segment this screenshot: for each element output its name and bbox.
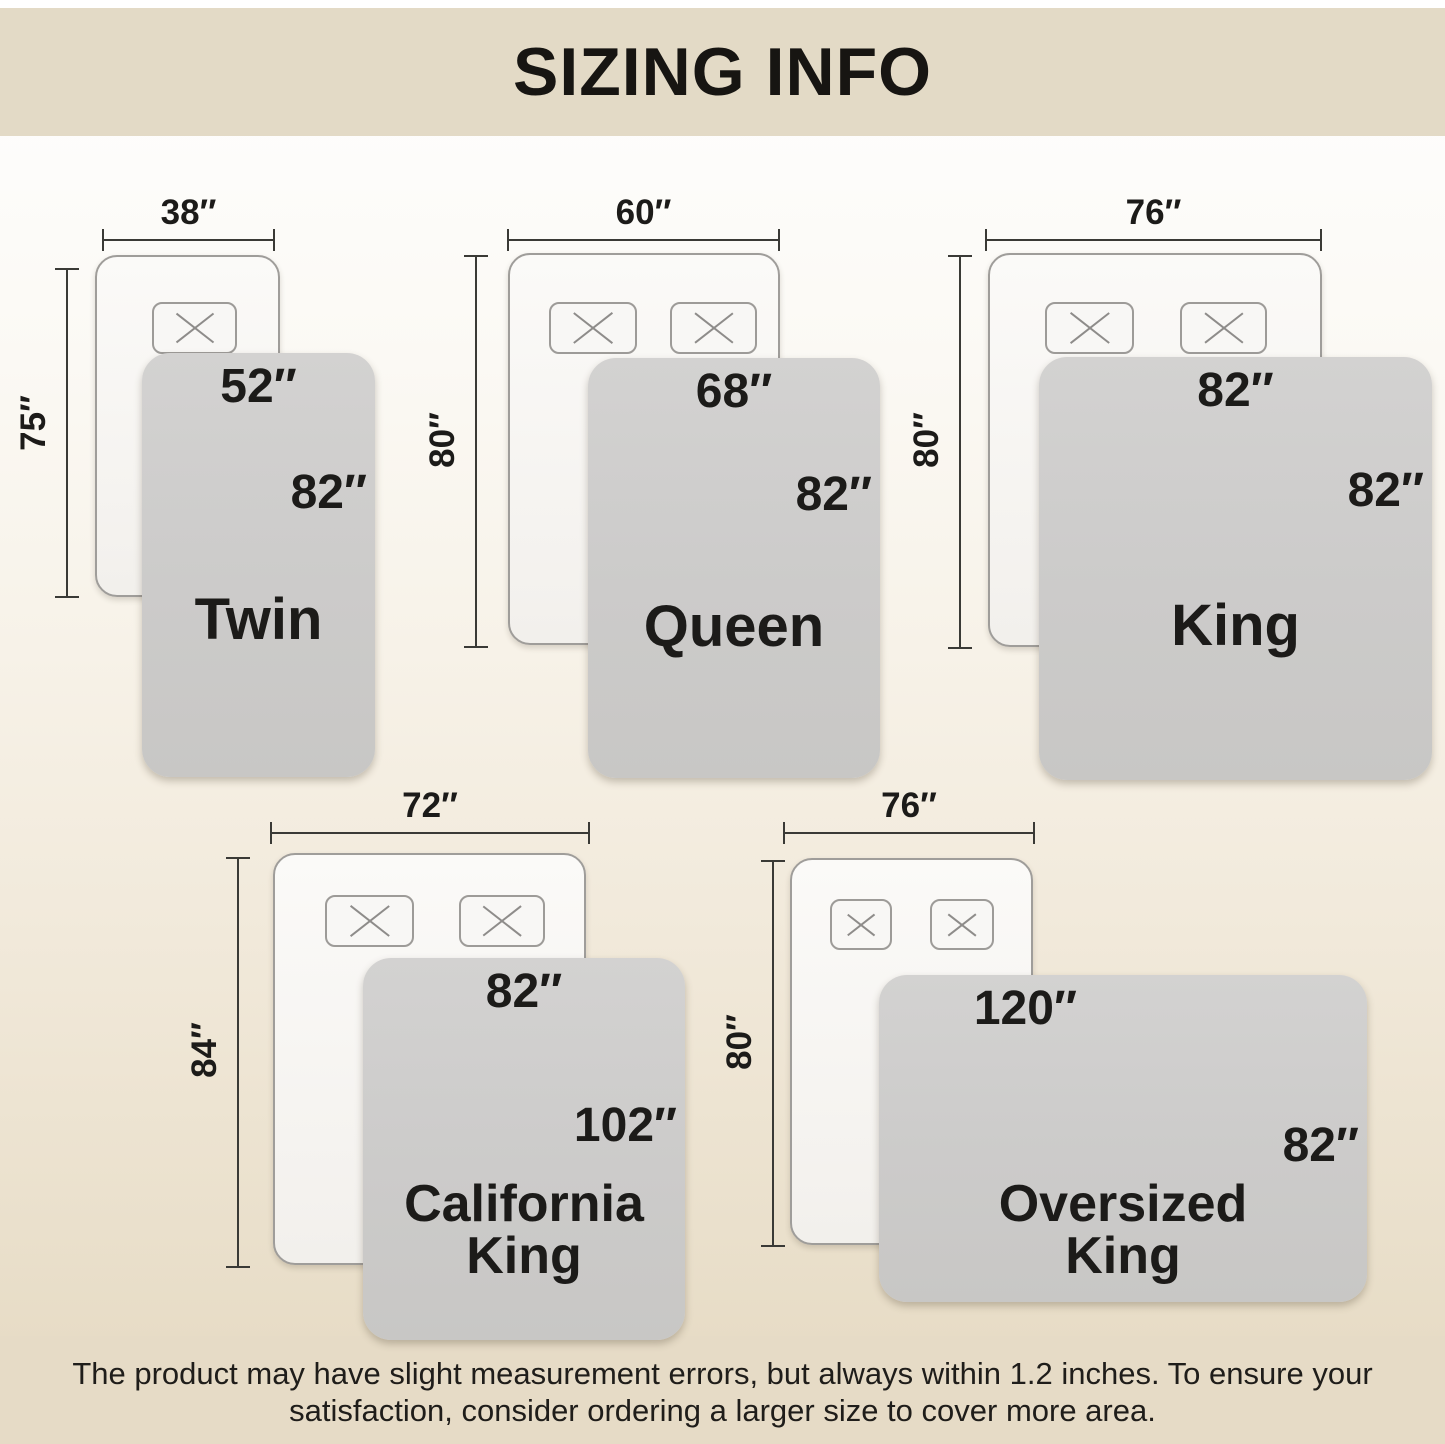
bed-width-dimension-line: 76″ <box>985 239 1322 241</box>
pillow-icon <box>549 302 637 354</box>
size-name-label: Queen <box>588 598 880 656</box>
pillow-x-icon <box>327 897 412 945</box>
bed-length-label: 75″ <box>14 395 54 451</box>
blanket: 120″82″Oversized King <box>879 975 1367 1302</box>
bed-width-label: 76″ <box>1126 193 1182 233</box>
pillow-icon <box>670 302 757 354</box>
pillow-icon <box>1180 302 1267 354</box>
pillow-x-icon <box>551 304 635 352</box>
size-diagram-oversized-king: 76″80″120″82″Oversized King <box>0 0 1445 1444</box>
size-diagram-twin: 38″75″52″82″Twin <box>0 0 1445 1444</box>
bed-length-dimension-line: 80″ <box>959 255 961 649</box>
page-title: SIZING INFO <box>513 33 932 111</box>
header-banner: SIZING INFO <box>0 8 1445 136</box>
bed-length-label: 80″ <box>907 412 947 468</box>
pillow-x-icon <box>1047 304 1132 352</box>
bed-mattress <box>790 858 1033 1245</box>
blanket-length-label: 102″ <box>574 1098 677 1153</box>
size-name-label: Oversized King <box>879 1178 1367 1282</box>
bed-mattress <box>508 253 780 645</box>
size-diagram-king: 76″80″82″82″King <box>0 0 1445 1444</box>
pillow-x-icon <box>1182 304 1265 352</box>
pillow-x-icon <box>461 897 543 945</box>
bed-width-label: 72″ <box>402 786 458 826</box>
bed-width-dimension-line: 60″ <box>507 239 780 241</box>
bed-width-label: 38″ <box>161 193 217 233</box>
pillow-icon <box>1045 302 1134 354</box>
blanket-width-label: 82″ <box>1197 363 1273 418</box>
pillow-x-icon <box>832 901 890 948</box>
bed-length-dimension-line: 75″ <box>66 268 68 598</box>
bed-length-dimension-line: 80″ <box>772 860 774 1247</box>
blanket: 82″82″King <box>1039 357 1432 780</box>
pillow-icon <box>152 302 237 354</box>
pillow-x-icon <box>672 304 755 352</box>
bed-length-label: 80″ <box>720 1014 760 1070</box>
pillow-icon <box>830 899 892 950</box>
blanket-width-label: 82″ <box>486 964 562 1019</box>
blanket-width-label: 52″ <box>220 359 296 414</box>
disclaimer-text: The product may have slight measurement … <box>33 1356 1413 1429</box>
bed-width-label: 60″ <box>616 193 672 233</box>
bed-length-dimension-line: 80″ <box>475 255 477 648</box>
bed-length-label: 84″ <box>185 1022 225 1078</box>
bed-width-dimension-line: 38″ <box>102 239 275 241</box>
size-name-label: California King <box>363 1178 685 1282</box>
pillow-icon <box>459 895 545 947</box>
size-diagram-queen: 60″80″68″82″Queen <box>0 0 1445 1444</box>
blanket: 82″102″California King <box>363 958 685 1340</box>
blanket-length-label: 82″ <box>291 465 367 520</box>
bed-length-dimension-line: 84″ <box>237 857 239 1268</box>
bed-width-dimension-line: 76″ <box>783 832 1035 834</box>
blanket-width-label: 120″ <box>974 981 1077 1036</box>
size-diagram-california-king: 72″84″82″102″California King <box>0 0 1445 1444</box>
sizing-infographic: SIZING INFO 38″75″52″82″Twin60″80″68″82″… <box>0 0 1445 1444</box>
bed-mattress <box>988 253 1322 647</box>
blanket-length-label: 82″ <box>796 467 872 522</box>
blanket-width-label: 68″ <box>696 364 772 419</box>
top-white-strip <box>0 0 1445 8</box>
pillow-icon <box>325 895 414 947</box>
blanket: 52″82″Twin <box>142 353 375 777</box>
pillow-x-icon <box>932 901 992 948</box>
size-name-label: King <box>1039 597 1432 655</box>
bed-width-dimension-line: 72″ <box>270 832 590 834</box>
bed-mattress <box>95 255 280 597</box>
size-name-label: Twin <box>142 591 375 649</box>
bed-length-label: 80″ <box>423 412 463 468</box>
bed-width-label: 76″ <box>881 786 937 826</box>
pillow-x-icon <box>154 304 235 352</box>
blanket-length-label: 82″ <box>1283 1118 1359 1173</box>
blanket-length-label: 82″ <box>1348 463 1424 518</box>
bed-mattress <box>273 853 586 1265</box>
blanket: 68″82″Queen <box>588 358 880 778</box>
pillow-icon <box>930 899 994 950</box>
